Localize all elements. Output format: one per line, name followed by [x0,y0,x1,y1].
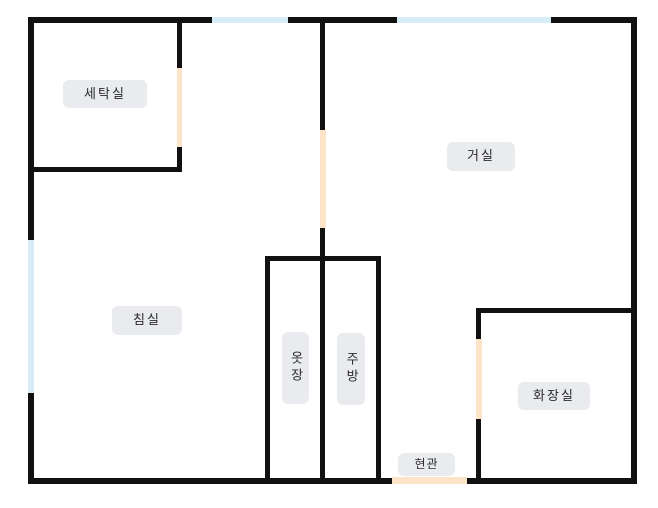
wall-segment [476,308,481,340]
door-marker [320,130,326,228]
room-label-living-room: 거실 [447,142,515,171]
door-marker [392,477,467,484]
room-label-kitchen: 주방 [337,333,365,405]
window-marker [397,17,551,23]
room-label-closet: 옷장 [282,332,309,404]
wall-segment [287,17,398,23]
wall-segment [631,17,637,484]
door-marker [177,68,182,147]
wall-segment [177,20,182,68]
wall-segment [466,478,637,484]
room-label-bedroom: 침실 [112,306,182,335]
wall-segment [265,256,380,261]
room-label-entrance: 현관 [398,453,455,476]
window-marker [212,17,288,23]
wall-segment [320,20,325,130]
wall-segment [477,308,637,313]
wall-segment [476,418,481,480]
wall-segment [28,478,393,484]
wall-segment [30,167,182,172]
wall-segment [376,256,381,480]
wall-segment [550,17,637,23]
door-marker [476,339,482,419]
room-label-laundry-room: 세탁실 [63,80,147,108]
wall-segment [265,256,270,480]
room-label-bathroom: 화장실 [518,382,590,410]
wall-segment [28,392,34,484]
wall-segment [28,17,34,241]
wall-segment [28,17,213,23]
window-marker [28,240,34,393]
floorplan-canvas: 세탁실거실침실옷장주방화장실현관 [0,0,658,508]
wall-segment [320,227,325,480]
